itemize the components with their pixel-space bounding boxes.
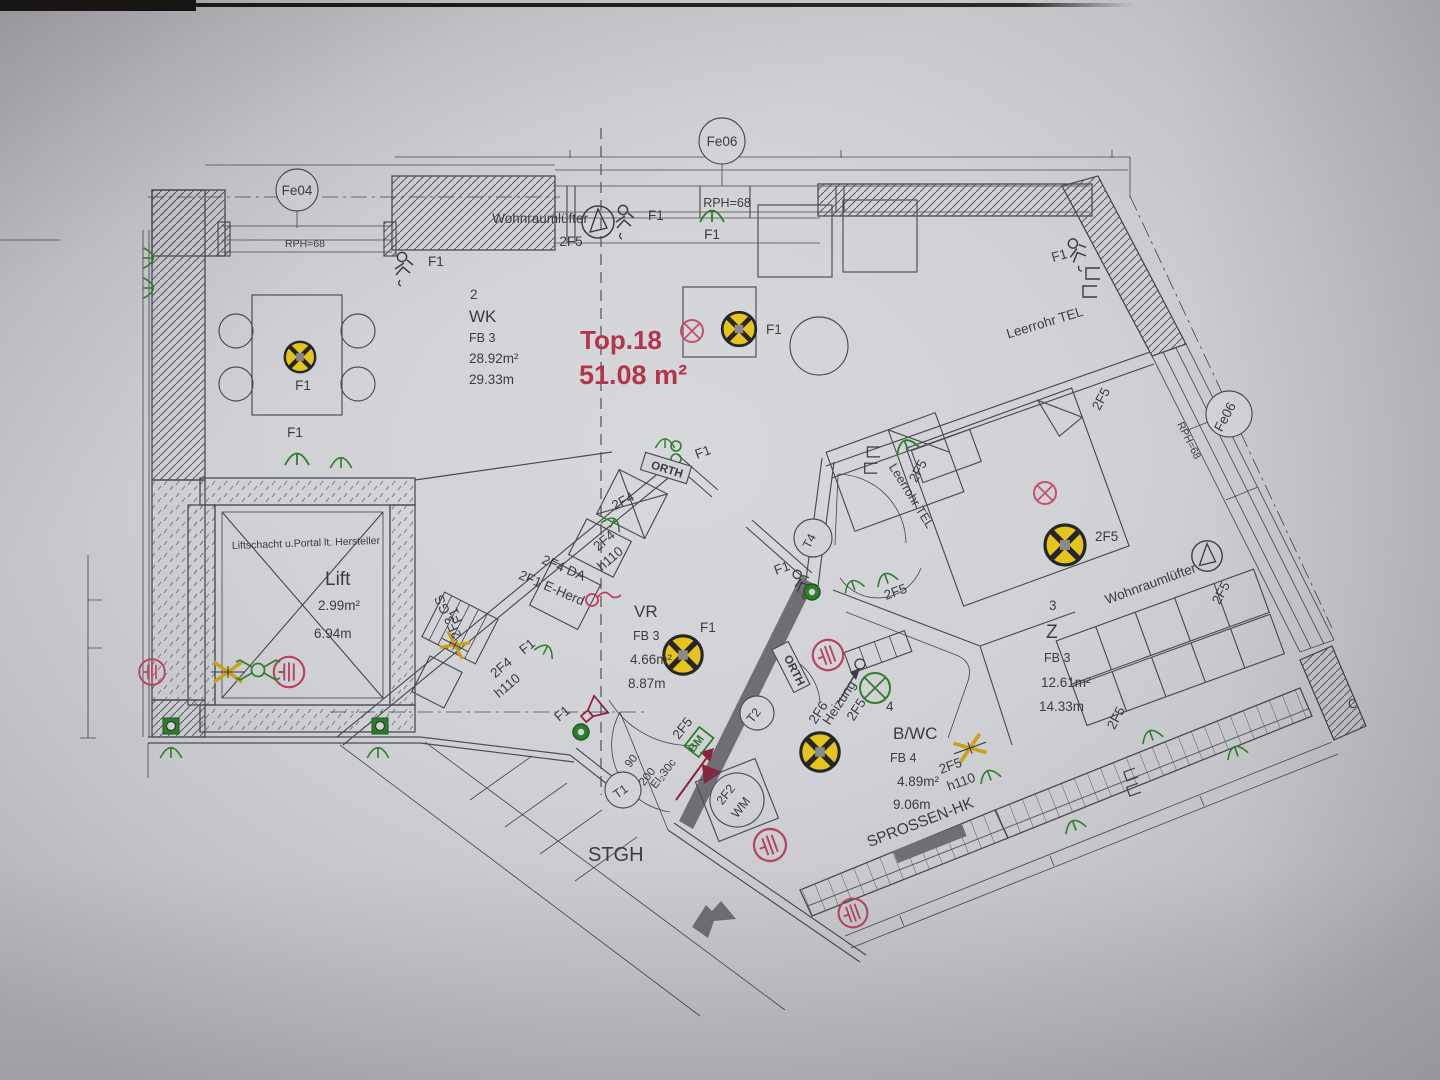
presence-detector-icon xyxy=(395,252,413,286)
presence-detector-icon xyxy=(616,205,634,239)
room-name: WK xyxy=(469,307,497,326)
room-floor: FB 3 xyxy=(633,629,659,643)
lift-note: Liftschacht u.Portal lt. Hersteller xyxy=(232,535,381,552)
photo-of-floor-plan: Fe04 RPH=68 Fe06 RPH=68 Fe06 RPH=68 Wohn… xyxy=(0,0,1440,1080)
room-name: Z xyxy=(1046,622,1058,643)
floor-socket-icon xyxy=(163,718,179,734)
label-f1: F1 xyxy=(648,208,664,223)
room-area: 12.61m² xyxy=(1041,675,1091,690)
door-contact-icon xyxy=(671,441,681,451)
label-stgh: STGH xyxy=(588,844,644,866)
junction-box-icon xyxy=(865,447,880,473)
room-floor: FB 3 xyxy=(469,331,495,345)
door-buzzer-icon xyxy=(809,636,848,675)
label-f1: F1 xyxy=(704,227,720,242)
label-leerrohr-tel: Leerrohr TEL xyxy=(1005,304,1086,342)
label-2f4: 2F4 xyxy=(609,489,637,513)
door-buzzer-icon xyxy=(749,824,790,865)
socket-icon xyxy=(977,767,1001,784)
chair xyxy=(341,367,375,401)
room-name: VR xyxy=(634,602,658,621)
ceiling-outlet-icon xyxy=(1034,482,1056,504)
section-marker: C xyxy=(1348,697,1357,711)
socket-icon xyxy=(285,454,309,466)
label-2f5: 2F5 xyxy=(1089,385,1113,413)
room-area: 4.66m² xyxy=(630,652,673,667)
room-number: 4 xyxy=(886,699,894,714)
label-f1: F1 xyxy=(295,378,311,393)
room-floor: FB 3 xyxy=(1044,651,1070,665)
label-f1: F1 xyxy=(428,254,444,269)
room-area: 2.99m² xyxy=(318,598,361,613)
ceiling-lamp-icon xyxy=(285,342,315,372)
socket-icon xyxy=(330,458,352,468)
entrance-arrow-icon xyxy=(692,901,736,938)
apartment-area: 51.08 m² xyxy=(579,360,687,390)
junction-box-icon xyxy=(1083,268,1100,297)
label-2f5: 2F5 xyxy=(1095,529,1118,544)
label-wohnraumluefter: Wohnraumlüfter xyxy=(492,211,588,226)
door-contact-icon xyxy=(573,724,589,740)
window-label: Fe06 xyxy=(707,134,738,149)
round-table xyxy=(790,317,848,375)
window-label: Fe04 xyxy=(282,183,313,198)
socket-icon xyxy=(534,641,557,659)
label-f1: F1 xyxy=(516,636,538,658)
label-2f5: 2F5 xyxy=(1104,704,1128,732)
window-label: RPH=68 xyxy=(703,196,751,210)
socket-icon xyxy=(1139,727,1163,744)
label-f1: F1 xyxy=(287,425,303,440)
label-2f5: 2F5 xyxy=(882,581,909,603)
window-label: RPH=68 xyxy=(285,238,325,250)
label-f1: F1 xyxy=(766,322,782,337)
label-f1: F1 xyxy=(551,703,573,725)
room-perimeter: 9.06m xyxy=(893,797,931,812)
ceiling-lamp-icon xyxy=(801,733,839,771)
heating-arrowhead xyxy=(850,668,860,680)
exterior-walls xyxy=(152,150,1366,948)
chair xyxy=(219,367,253,401)
window-label: RPH=68 xyxy=(1174,420,1203,461)
closet-row xyxy=(1056,569,1284,725)
label-2f5: 2F5 xyxy=(559,234,582,249)
room-name: B/WC xyxy=(893,724,937,743)
room-area: 28.92m² xyxy=(469,351,519,366)
radiator xyxy=(844,631,912,674)
socket-icon xyxy=(367,748,389,758)
floor-plan-drawing: Fe04 RPH=68 Fe06 RPH=68 Fe06 RPH=68 Wohn… xyxy=(0,0,1440,1080)
ventilation-fan-icon xyxy=(1192,541,1222,571)
dim-90: 90. xyxy=(623,750,642,770)
room-area: 4.89m² xyxy=(897,774,940,789)
label-wohnraumluefter: Wohnraumlüfter xyxy=(1103,560,1199,607)
ceiling-lamp-icon xyxy=(1045,525,1085,565)
socket-icon xyxy=(160,748,182,758)
label-f1: F1 xyxy=(772,558,792,577)
room-number: 3 xyxy=(1049,598,1057,613)
room-name: Lift xyxy=(325,569,351,590)
room-perimeter: 6.94m xyxy=(314,626,352,641)
ceiling-outlet-icon xyxy=(681,320,703,342)
chair xyxy=(219,314,253,348)
room-floor: FB 4 xyxy=(890,751,916,765)
label-2f5: 2F5 xyxy=(1209,579,1233,607)
room-number: 2 xyxy=(470,287,478,302)
floor-socket-icon xyxy=(372,718,388,734)
apartment-title: Top.18 xyxy=(580,325,662,355)
socket-icon xyxy=(1062,817,1086,834)
room-perimeter: 14.33m xyxy=(1039,699,1084,714)
ceiling-lamp-icon xyxy=(722,312,756,346)
label-f1: F1 xyxy=(1050,246,1069,265)
switch-icon xyxy=(211,662,245,682)
label-wm: WM xyxy=(728,794,753,820)
heating-valve-icon xyxy=(855,659,865,669)
label-f1: F1 xyxy=(693,442,713,461)
room-perimeter: 8.87m xyxy=(628,676,666,691)
chair xyxy=(341,314,375,348)
door-contact-icon xyxy=(804,584,820,600)
bed xyxy=(906,388,1129,606)
lift-shaft xyxy=(188,478,415,732)
label-f1: F1 xyxy=(700,620,716,635)
room-perimeter: 29.33m xyxy=(469,372,514,387)
